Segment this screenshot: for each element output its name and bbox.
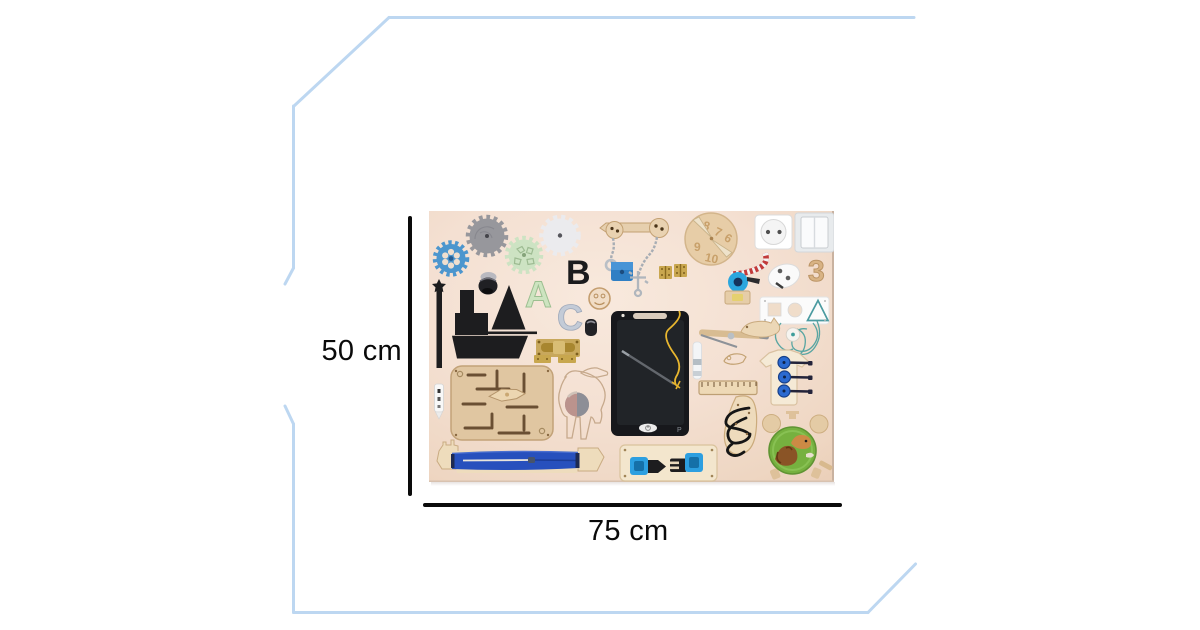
svg-text:3: 3 <box>808 255 825 288</box>
svg-text:9: 9 <box>694 240 701 254</box>
svg-text:P: P <box>677 427 682 434</box>
svg-text:C: C <box>557 297 583 338</box>
svg-text:B: B <box>566 254 591 292</box>
svg-text:A: A <box>525 274 552 315</box>
